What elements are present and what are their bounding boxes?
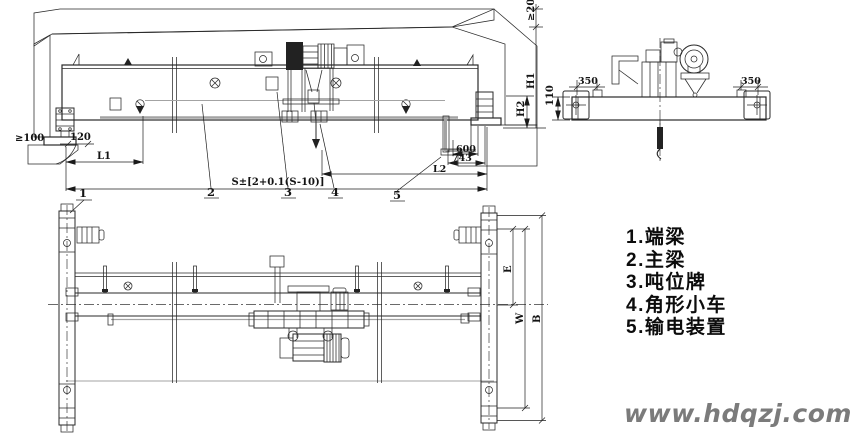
- dim-120: 120: [70, 132, 91, 143]
- hoist-trolley-side: [612, 39, 709, 97]
- wheel-left: [563, 91, 589, 119]
- conductor-rail: [75, 266, 481, 292]
- left-wall-hatch: [34, 35, 50, 137]
- hoist-trolley-elevation: [255, 42, 364, 149]
- hook-limit-icon: [402, 100, 410, 114]
- cable-drum: [680, 45, 708, 73]
- dim-span-formula: S±[2+0.1(S-10)]: [232, 177, 325, 188]
- runway-rail-right: [471, 118, 501, 125]
- dim-l2: L2: [433, 164, 446, 175]
- legend-item: 5.输电装置: [626, 317, 727, 340]
- dim-743: 743: [452, 153, 472, 164]
- legend: 1.端梁 2.主梁 3.吨位牌 4.角形小车 5.输电装置: [626, 227, 727, 340]
- dim-350-right: 350: [741, 76, 761, 87]
- callout-5: 5: [393, 188, 401, 202]
- elevation-view: ≥100 120 L1 S±[2+0.1(S-10)] 600 743 L2 ≥…: [15, 0, 546, 213]
- dim-plan-w: W: [515, 312, 526, 325]
- girder-section: [572, 97, 766, 120]
- travel-motor-left: [77, 227, 104, 243]
- end-beam-right: [454, 206, 497, 430]
- cross-travel-motor: [331, 288, 348, 310]
- rail-post: [354, 266, 360, 292]
- legend-item: 4.角形小车: [626, 295, 727, 318]
- elevation-dimensions: [60, 4, 546, 191]
- callout-leaders: [70, 92, 441, 213]
- rail-post: [192, 266, 198, 292]
- drawing-canvas: ≥100 120 L1 S±[2+0.1(S-10)] 600 743 L2 ≥…: [0, 0, 858, 435]
- legend-item: 1.端梁: [626, 227, 727, 250]
- dim-plan-e: E: [503, 265, 514, 273]
- crane-outline-drawing: ≥100 120 L1 S±[2+0.1(S-10)] 600 743 L2 ≥…: [0, 0, 858, 435]
- dim-clearance-top: ≥200: [526, 0, 537, 21]
- travel-motor-right: [454, 227, 481, 243]
- hook-elevation: [312, 122, 320, 149]
- dim-clearance-left: ≥100: [15, 133, 44, 144]
- dim-h1: H1: [526, 73, 537, 89]
- hook-limit-icon: [136, 100, 144, 114]
- rail-post: [102, 266, 108, 292]
- callout-2: 2: [207, 185, 215, 199]
- plan-view: E W B: [48, 204, 548, 432]
- callout-3: 3: [284, 185, 292, 199]
- small-plate: [110, 98, 121, 110]
- legend-item: 2.主梁: [626, 250, 727, 273]
- hoist-body-plan: [280, 334, 349, 362]
- watermark: www.hdqzj.com: [624, 399, 852, 428]
- lift-point-icon: [210, 78, 220, 88]
- dim-plan-b: B: [532, 315, 543, 323]
- dim-h2: H2: [516, 101, 527, 117]
- lift-point-icon: [331, 78, 341, 88]
- tonnage-plate: [266, 77, 278, 90]
- angular-trolley-plan: [249, 256, 369, 362]
- collector-icon: [414, 282, 422, 290]
- legend-item: 3.吨位牌: [626, 272, 727, 295]
- dim-l1: L1: [97, 151, 111, 162]
- rail-post: [444, 266, 450, 292]
- collector-icon: [124, 282, 132, 290]
- callout-1: 1: [79, 186, 87, 200]
- dim-350-left: 350: [578, 76, 598, 87]
- dim-110: 110: [545, 85, 556, 106]
- side-view: 350 350 110: [545, 38, 770, 162]
- callout-4: 4: [331, 185, 339, 199]
